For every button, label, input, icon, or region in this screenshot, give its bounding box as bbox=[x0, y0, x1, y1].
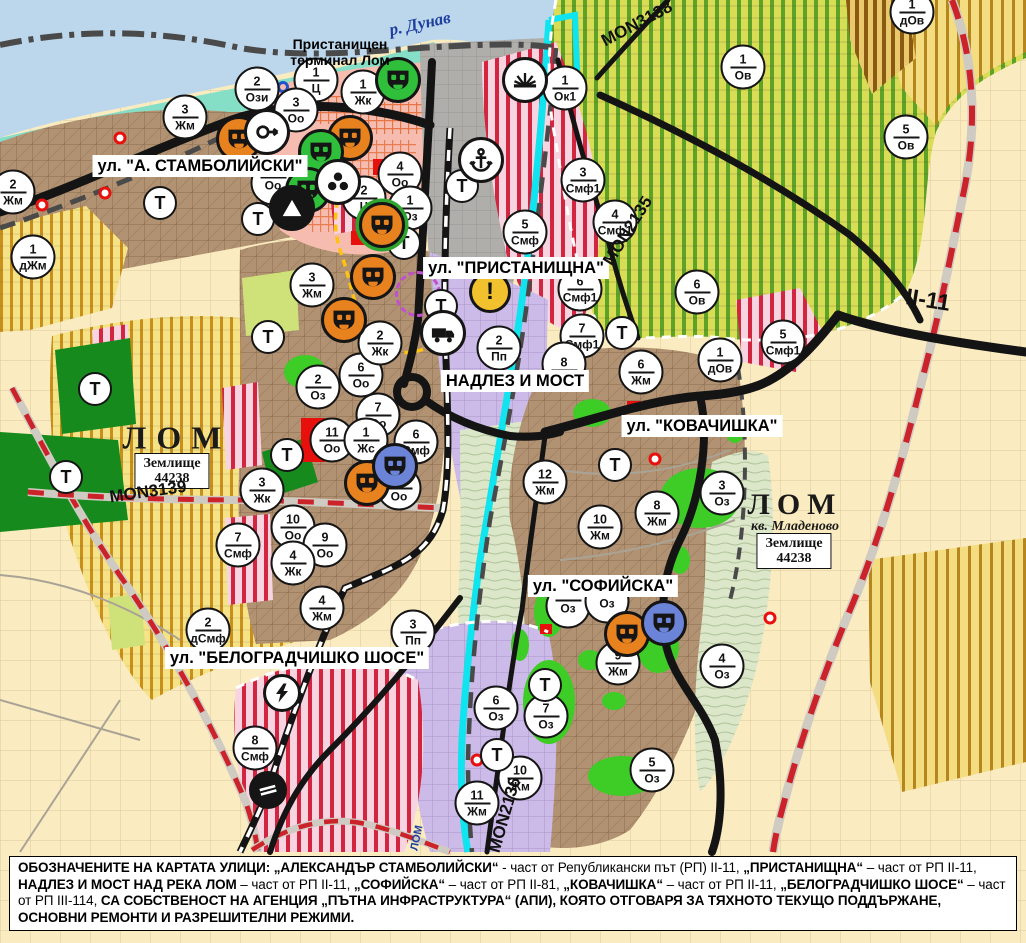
caption-segment: „КОВАЧИШКА“ bbox=[563, 877, 663, 892]
road-ref-mon2136: MON2136 bbox=[485, 775, 526, 855]
road-ref-ii-11: II-11 bbox=[904, 283, 952, 317]
caption-segment: „ПРИСТАНИЩНА“ bbox=[743, 860, 863, 875]
caption-segment: НАДЛЕЗ И МОСТ НАД РЕКА ЛОМ bbox=[18, 877, 237, 892]
street-label-stamboliyski: ул. "А. СТАМБОЛИЙСКИ" bbox=[93, 155, 308, 177]
caption-segment: – част от РП II-81, bbox=[445, 877, 563, 892]
road-ref-mon3139: MON3139 bbox=[108, 477, 188, 508]
caption-segment: – част от РП II-11, bbox=[863, 860, 977, 875]
caption-segment: СА СОБСТВЕНОСТ НА АГЕНЦИЯ „ПЪТНА ИНФРАСТ… bbox=[18, 893, 941, 925]
legend-caption: ОБОЗНАЧЕНИТЕ НА КАРТАТА УЛИЦИ: „АЛЕКСАНД… bbox=[9, 856, 1017, 931]
label-layer: ул. "А. СТАМБОЛИЙСКИ"ул. "ПРИСТАНИЩНА"НА… bbox=[0, 0, 1026, 943]
city-label-lom-mladenovo: ЛОМ bbox=[747, 488, 842, 522]
river-lom-label: ЛОМ bbox=[408, 824, 425, 851]
street-label-nadlez-i-most: НАДЛЕЗ И МОСТ bbox=[441, 370, 589, 392]
legend-caption-text: ОБОЗНАЧЕНИТЕ НА КАРТАТА УЛИЦИ: „АЛЕКСАНД… bbox=[18, 860, 1008, 926]
caption-segment: ОБОЗНАЧЕНИТЕ НА КАРТАТА УЛИЦИ: „АЛЕКСАНД… bbox=[18, 860, 499, 875]
land-unit-box-east: Землище 44238 bbox=[756, 533, 831, 569]
caption-segment: „БЕЛОГРАДЧИШКО ШОСЕ“ bbox=[780, 877, 963, 892]
road-ref-mon3138: MON3138 bbox=[598, 0, 676, 51]
city-label-lom: ЛОМ bbox=[123, 420, 232, 457]
street-label-kovachishka: ул. "КОВАЧИШКА" bbox=[622, 415, 783, 437]
zoning-map: 2Ози1Ц1Жк3Оо3Жм2Жм1дЖм4Оо2Ц1ОзОо3Жм2Оз6О… bbox=[0, 0, 1026, 943]
road-ref-mon2135: MON2135 bbox=[599, 193, 657, 269]
caption-segment: – част от РП II-11, bbox=[663, 877, 780, 892]
caption-segment: „СОФИЙСКА“ bbox=[354, 877, 445, 892]
street-label-sofiyska: ул. "СОФИЙСКА" bbox=[528, 575, 678, 597]
street-label-pristanishtna: ул. "ПРИСТАНИЩНА" bbox=[423, 257, 609, 279]
port-terminal-label: Пристанищен терминал Лом bbox=[290, 36, 390, 68]
caption-segment: – част от РП II-11, bbox=[237, 877, 354, 892]
caption-segment: - част от Републикански път (РП) II-11, bbox=[499, 860, 744, 875]
river-danube-label: р. Дунав bbox=[388, 8, 453, 40]
street-label-belogradchishko: ул. "БЕЛОГРАДЧИШКО ШОСЕ" bbox=[165, 647, 429, 669]
